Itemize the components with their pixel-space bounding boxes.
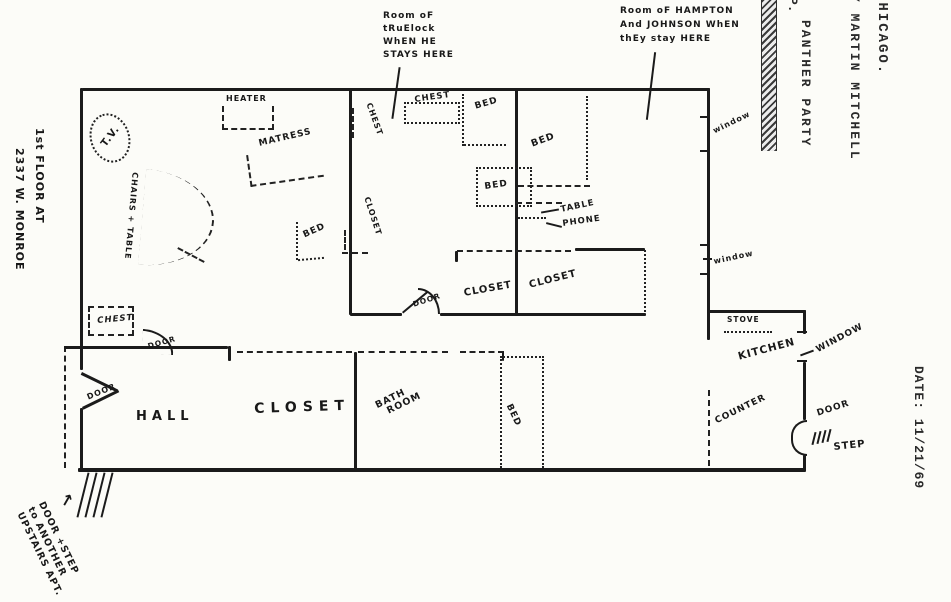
- truelock-note-line3: WhEN HE: [383, 36, 454, 49]
- back-door-arc: [791, 420, 807, 456]
- hampton-bed-dash-2: [516, 202, 562, 204]
- phone-pointer-line: [546, 222, 562, 228]
- truelock-closet-label: CLOSET: [362, 196, 383, 237]
- truelock-bed-top-label: BED: [474, 97, 499, 113]
- kitchen-window-tick-top: [797, 331, 807, 333]
- back-step-label: STEP: [833, 439, 866, 453]
- wall-closetroom-top-dashed: [237, 351, 352, 353]
- closet-top-dashed: [457, 250, 571, 252]
- wall-bathroom-divider: [354, 352, 357, 470]
- wall-bottom: [78, 468, 806, 472]
- window2-pointer: [703, 258, 712, 260]
- porch-dashed-line: [64, 346, 66, 468]
- truelock-bed-top-dots-v: [462, 94, 464, 146]
- hampton-bed-dash-1: [518, 185, 590, 187]
- hampton-bed-dots-h: [518, 217, 546, 219]
- livingroom-bed-dots-v: [296, 222, 298, 260]
- back-step-hatch-4: [826, 429, 831, 442]
- wall-rooms-bottom-a: [350, 313, 402, 316]
- window2-tick-top: [700, 244, 709, 246]
- livingroom-bed-dots-h: [298, 257, 324, 261]
- closet-a-label: CLOSET: [463, 280, 513, 299]
- wall-left-lower: [80, 408, 83, 470]
- heater-dashed-outline: [222, 106, 274, 130]
- kitchen-window-label: WINDOW: [815, 323, 865, 356]
- truelock-note-line2: tRuElock: [383, 23, 454, 36]
- closet-b-label: CLOSET: [528, 268, 578, 290]
- wall-kitchen-top: [707, 310, 806, 313]
- window1-tick-bottom: [700, 150, 709, 152]
- table-label: TABLE: [560, 199, 596, 215]
- upstairs-note-arrow: ↑: [57, 490, 78, 512]
- upstairs-note: DOOR +STEPto ANOTHERUPSTAIRS APT.: [14, 500, 87, 598]
- chairs-table-label: CHAIRS + TABLE: [122, 172, 138, 260]
- closet-top-solid: [575, 248, 645, 251]
- truelock-room-note: Room oFtRuElockWhEN HESTAYS HERE: [383, 10, 454, 62]
- chairs-table-dashed-arc: [138, 169, 218, 271]
- truelock-chest-wall-label: CHEST: [364, 102, 384, 137]
- hall-closet-label: CLOSET: [254, 399, 350, 418]
- table-pointer-line: [541, 208, 559, 213]
- closet-right-dotted: [644, 250, 646, 312]
- hampton-note-line2: And JOHNSON WhEN: [620, 18, 740, 32]
- hampton-bed-label: BED: [530, 132, 557, 150]
- hall-label: HALL: [136, 410, 194, 424]
- wall-kitchen-right-b: [803, 362, 806, 420]
- margin-city-text: CHICAGO.: [874, 0, 890, 75]
- phone-label: PHONE: [562, 215, 601, 230]
- hall-chest-dashed-outline: [88, 306, 134, 336]
- back-door-label: DOOR: [816, 400, 851, 420]
- wall-top: [82, 88, 710, 91]
- decorative-braid-border: [761, 0, 777, 151]
- wall-left-upper: [80, 88, 83, 370]
- bathroom-label: BATHROOM: [374, 382, 424, 420]
- stove-dotted-line: [724, 331, 772, 333]
- window2-tick-bottom: [700, 273, 709, 275]
- truelock-chest-wall-dashes: [352, 108, 354, 138]
- truelock-closet-dashes-h: [342, 252, 368, 254]
- closet-corner-tick: [455, 251, 458, 262]
- scanned-floorplan-page: { "margin_right": { "city": "CHICAGO.", …: [0, 0, 951, 602]
- truelock-chest-dotted-outline: [404, 102, 460, 124]
- wall-hall-corner-tick: [228, 346, 231, 361]
- truelock-closet-dashes-v: [344, 230, 346, 250]
- window1-label: window: [712, 110, 752, 136]
- wall-kitchen-right-c: [803, 455, 806, 470]
- heater-label: HEATER: [226, 95, 267, 104]
- truelock-bed-top-dots-h: [464, 144, 506, 146]
- margin-party-text: PANTHER PARTY: [798, 20, 813, 147]
- wall-bathroom-top-dashed2: [460, 351, 504, 353]
- hampton-pointer-line: [646, 52, 656, 120]
- truelock-bed-mid-dotted-outline: [476, 167, 532, 207]
- hampton-note-line3: thEy stay HERE: [620, 32, 740, 46]
- truelock-pointer-line: [391, 67, 400, 119]
- matress-dashed-outline: [246, 145, 324, 187]
- margin-fragment-text: P.: [785, 0, 800, 13]
- counter-dashed-line: [708, 390, 710, 466]
- kitchen-window-tick-bottom: [797, 360, 807, 362]
- address-line1: 1st FLOOR AT: [33, 128, 45, 224]
- wall-bathroom-top-dashed: [358, 351, 448, 353]
- hampton-bed-dots-v: [586, 96, 588, 180]
- stove-label: STOVE: [727, 316, 760, 324]
- window1-tick-top: [700, 116, 709, 118]
- truelock-note-line1: Room oF: [383, 10, 454, 23]
- wall-rooms-bottom-b: [440, 313, 646, 316]
- hampton-room-note: Room oF HAMPTONAnd JOHNSON WhENthEy stay…: [620, 4, 740, 46]
- address-line2: 2337 W. MONROE: [13, 148, 25, 271]
- livingroom-bed-label: BED: [302, 222, 327, 241]
- kitchen-label: KITCHEN: [737, 337, 797, 363]
- hampton-note-line1: Room oF HAMPTON: [620, 4, 740, 18]
- kitchen-window-pointer: [800, 350, 814, 357]
- wall-right-upper: [707, 88, 710, 340]
- counter-label: COUNTER: [714, 394, 768, 427]
- truelock-note-line4: STAYS HERE: [383, 49, 454, 62]
- margin-date-text: DATE: 11/21/69: [911, 366, 926, 489]
- margin-byline-text: Y MARTIN MITCHELL: [847, 0, 862, 161]
- window2-label: window: [713, 250, 754, 267]
